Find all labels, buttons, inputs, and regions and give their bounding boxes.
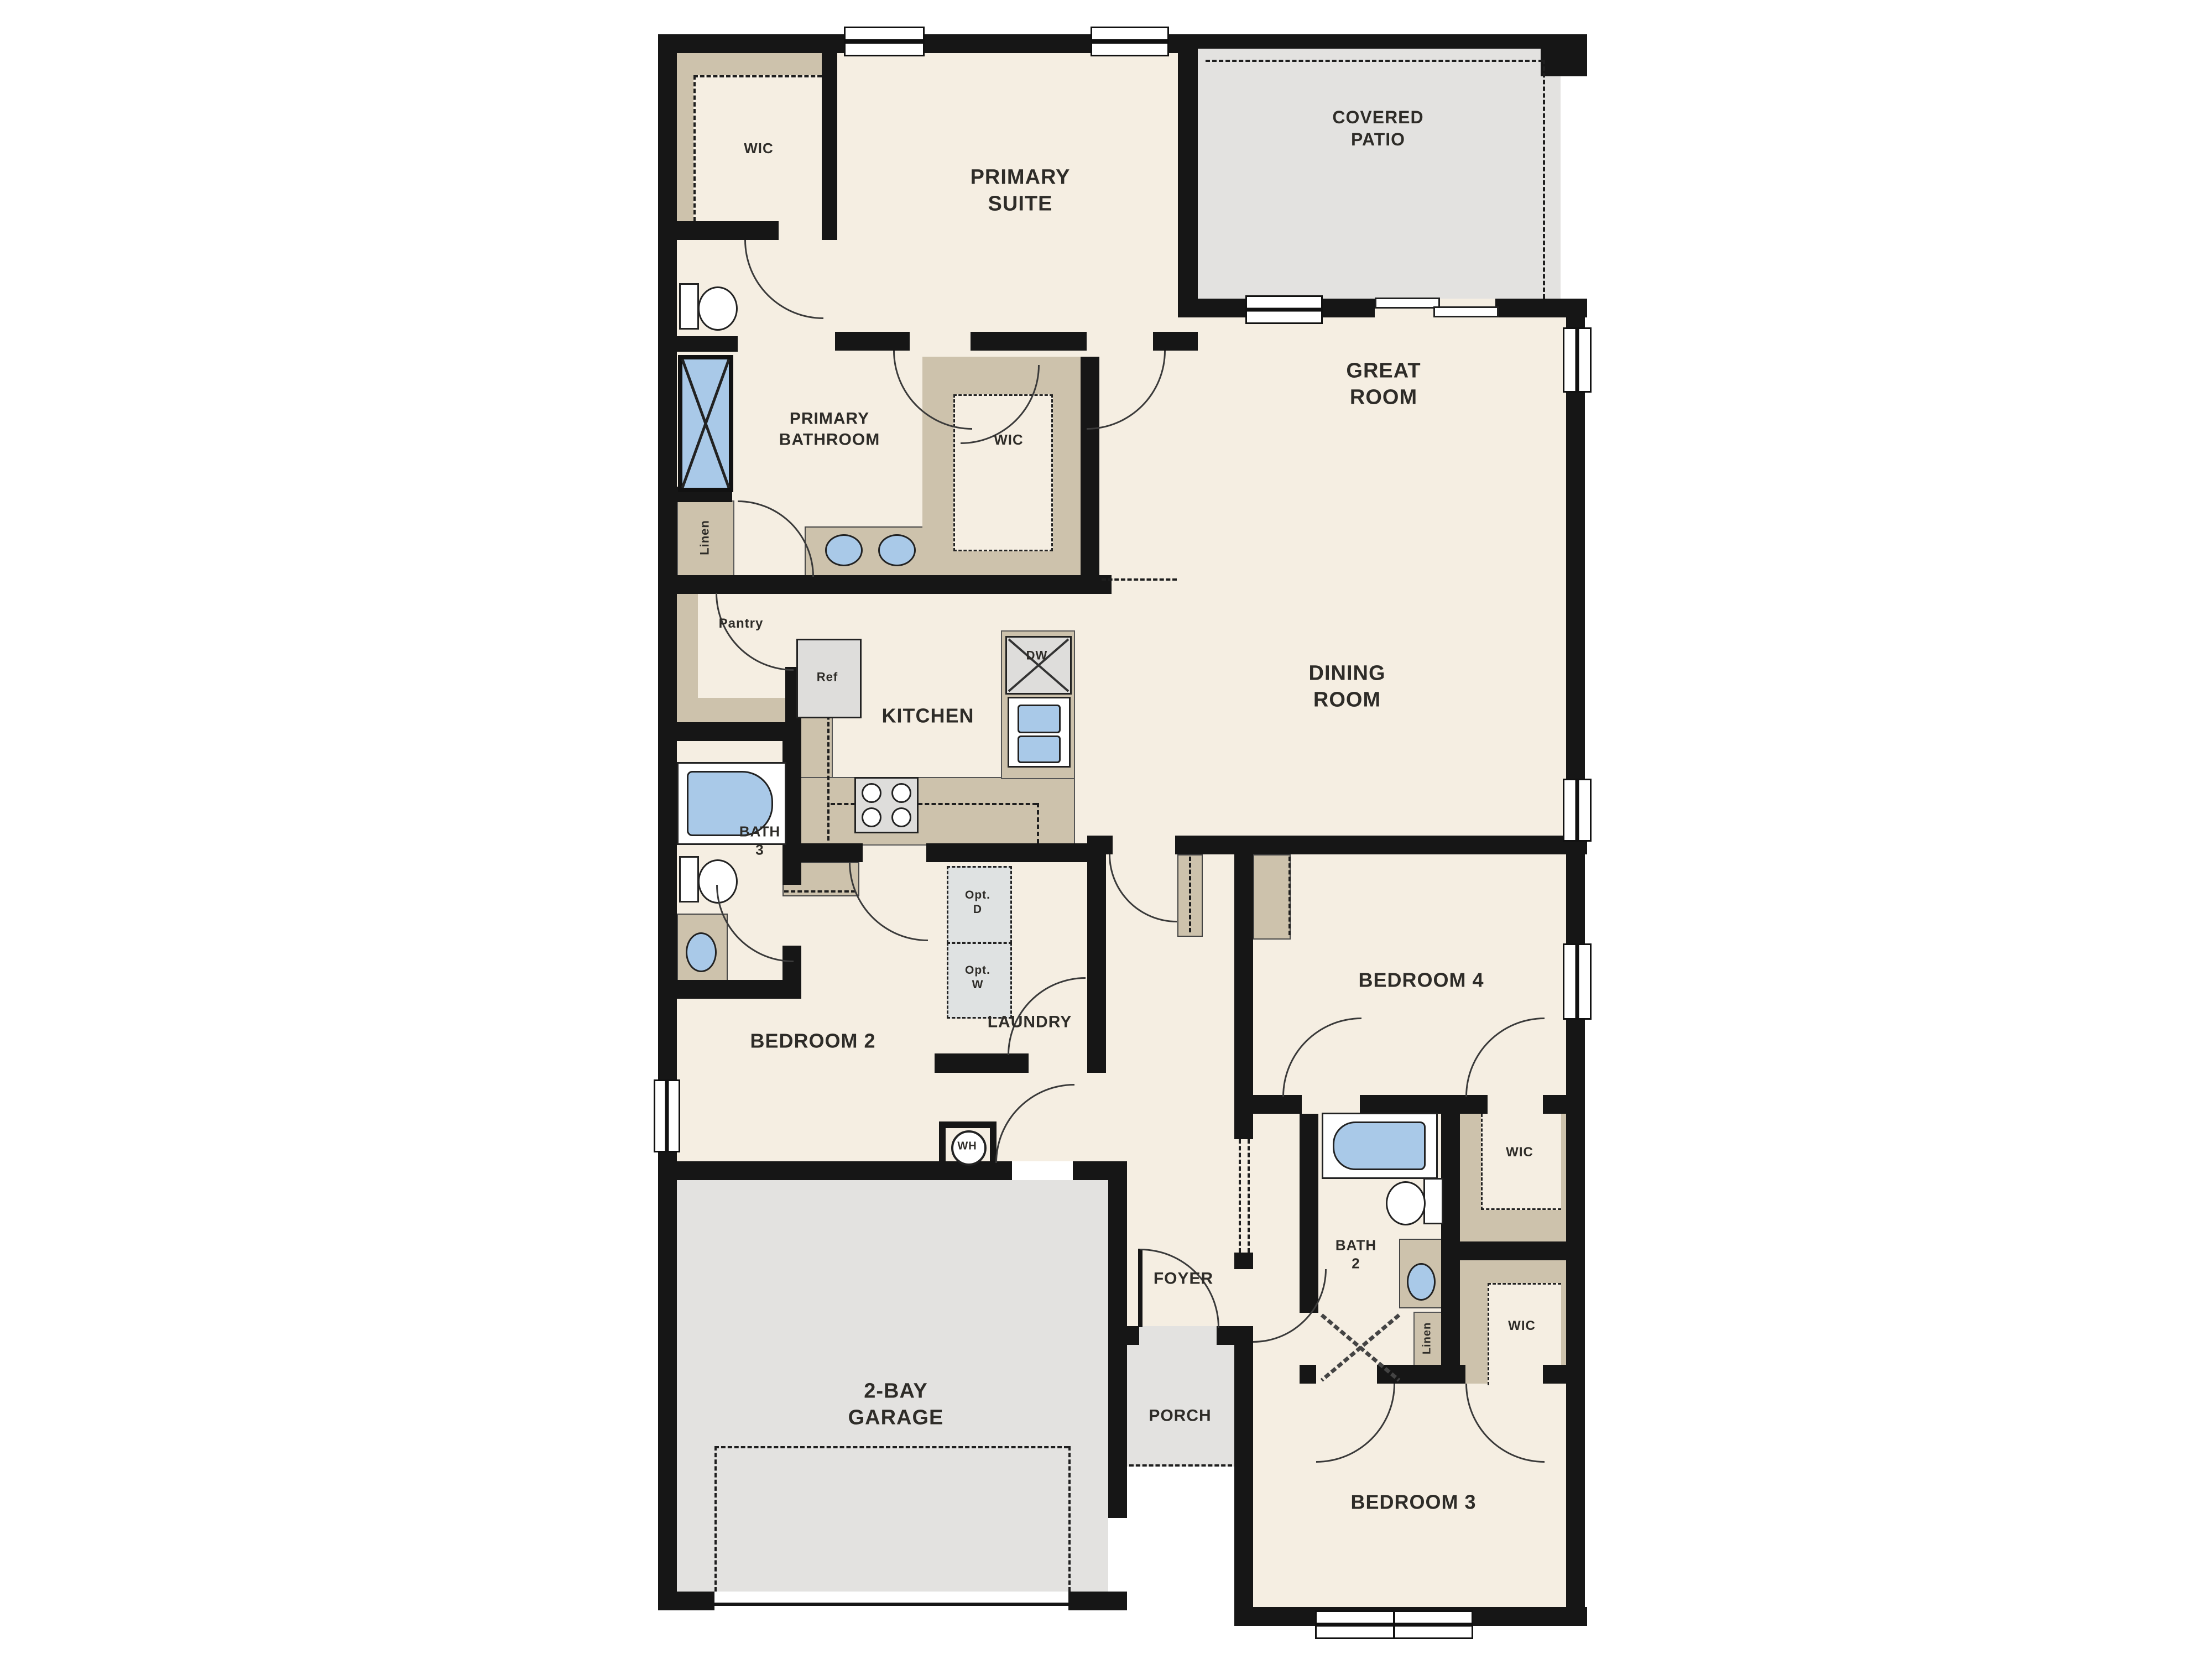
toilet-primary-tank — [679, 283, 699, 330]
toilet-bath2-tank — [1423, 1178, 1443, 1224]
room-label-covered-patio: COVERED PATIO — [1332, 106, 1423, 150]
room-label-foyer: FOYER — [1154, 1268, 1213, 1289]
appliance-label-opt-washer: Opt. W — [965, 963, 990, 993]
cooktop-burner-4 — [891, 807, 911, 827]
room-label-wic4: WIC — [1508, 1318, 1536, 1334]
primary-sink-2 — [878, 534, 916, 566]
dishwasher-x — [1005, 636, 1072, 695]
wic3-interior — [1481, 1114, 1561, 1210]
wall-bedroom4-bottom-b — [1360, 1095, 1488, 1114]
wall-wc-stub — [677, 336, 738, 352]
room-label-garage: 2-BAY GARAGE — [848, 1379, 944, 1431]
window-bedroom3-2 — [1394, 1610, 1473, 1639]
wall-wh-left — [939, 1126, 946, 1161]
window-great-room-patio — [1245, 295, 1323, 324]
bath2-pocket-door-x — [1318, 1310, 1401, 1384]
window-primary-suite-2 — [1091, 27, 1169, 56]
wall-bath2-block-bottom-c — [1543, 1365, 1566, 1384]
wall-wh-top — [939, 1121, 997, 1128]
wall-ps-bottom-a — [835, 332, 910, 351]
patio-post — [1541, 34, 1587, 76]
kitchen-opt-counter-dashed-v — [1037, 803, 1039, 843]
room-label-dining-room: DINING ROOM — [1309, 661, 1386, 713]
room-label-linen-primary: Linen — [697, 520, 712, 555]
room-label-bedroom3: BEDROOM 3 — [1350, 1490, 1476, 1515]
wall-front-b — [1217, 1326, 1234, 1345]
room-label-wic3: WIC — [1506, 1144, 1533, 1161]
wall-bedroom4-bottom-a — [1234, 1095, 1302, 1114]
garage-door-dashed-left — [714, 1446, 717, 1592]
wall-wic1-right — [822, 53, 837, 240]
appliance-label-ref: Ref — [817, 669, 838, 685]
wall-garage-right — [1108, 1161, 1127, 1518]
wall-garage-bottom-left — [658, 1592, 714, 1610]
appliance-label-opt-dryer: Opt. D — [965, 888, 990, 917]
room-label-primary-suite: PRIMARY SUITE — [971, 165, 1071, 217]
room-label-bedroom2: BEDROOM 2 — [750, 1029, 875, 1053]
foyer-opening-dashed-b — [1248, 1139, 1250, 1253]
wall-garage-top-b — [1073, 1161, 1108, 1180]
room-label-kitchen: KITCHEN — [882, 703, 974, 728]
wall-patio-top — [1194, 34, 1587, 49]
window-great-room-right — [1563, 327, 1592, 393]
wall-kitchen-bottom-b — [926, 843, 1106, 862]
covered-patio-slab — [1198, 49, 1561, 299]
garage-door-dashed-top — [714, 1446, 1068, 1448]
room-label-pantry: Pantry — [719, 615, 764, 632]
wic1-shelf-dashed — [693, 75, 822, 77]
wall-left — [658, 34, 677, 1610]
wall-foyer-right-upper — [1234, 836, 1253, 1139]
wall-ps-bottom-c — [1153, 332, 1198, 351]
room-label-bath2: BATH 2 — [1335, 1237, 1376, 1272]
garage-door-dashed-right — [1068, 1446, 1071, 1592]
wic1-shelving-left — [677, 75, 693, 221]
patio-roof-dashed-right — [1543, 60, 1545, 299]
sliding-door-panel-2 — [1433, 306, 1499, 317]
patio-roof-dashed-top — [1206, 60, 1543, 62]
wall-greatroom-top-a — [1194, 299, 1245, 317]
hall-greatroom-opening-dashed — [1102, 578, 1177, 581]
wall-ps-bottom-b — [971, 332, 1087, 351]
room-label-wic1: WIC — [744, 139, 774, 158]
wall-bath2-wic-divider — [1441, 1114, 1460, 1365]
foyer-opening-dashed-a — [1239, 1139, 1241, 1253]
wall-wic-divider — [1460, 1241, 1566, 1260]
primary-sink-1 — [825, 534, 863, 566]
wall-wic1-bottom — [677, 221, 779, 240]
appliance-label-dw: DW — [1026, 648, 1048, 663]
wall-ps-right — [1178, 34, 1198, 317]
room-label-primary-bathroom: PRIMARY BATHROOM — [779, 409, 880, 450]
room-label-bedroom4: BEDROOM 4 — [1358, 968, 1484, 993]
wall-greatroom-top-b — [1319, 299, 1375, 317]
bedroom2-closet-rod-dashed — [784, 890, 855, 893]
window-bedroom2 — [654, 1079, 680, 1152]
garage-door-line — [714, 1603, 1068, 1606]
room-label-bath3: BATH 3 — [739, 823, 780, 859]
appliance-label-wh: WH — [957, 1140, 977, 1154]
pantry-shelving-bottom — [677, 698, 785, 722]
toilet-bath2-bowl — [1386, 1181, 1426, 1225]
wall-dining-bottom-a — [1106, 836, 1113, 854]
wall-laundry-bottom — [935, 1053, 1029, 1073]
kitchen-counter-bottom — [796, 777, 1075, 846]
porch-edge-dashed — [1129, 1464, 1232, 1467]
wall-dining-bottom-b — [1175, 836, 1587, 854]
window-dining — [1563, 779, 1592, 842]
room-label-linen-hall: Linen — [1421, 1322, 1434, 1354]
porch-slab — [1127, 1326, 1234, 1467]
wall-laundry-right — [1087, 836, 1106, 1073]
room-label-great-room: GREAT ROOM — [1346, 358, 1421, 411]
toilet-primary-bowl — [698, 286, 738, 331]
window-bedroom3-1 — [1315, 1610, 1395, 1639]
wic1-shelving-top — [677, 53, 824, 75]
wall-foyer-right-mid — [1234, 1253, 1253, 1269]
bath3-sink — [686, 932, 717, 972]
bath2-tub — [1333, 1121, 1426, 1170]
bedroom4-closet — [1253, 854, 1291, 940]
wall-bedroom3-left — [1234, 1326, 1253, 1607]
toilet-bath3-tank — [679, 856, 699, 902]
kitchen-sink-basin-2 — [1018, 735, 1061, 763]
cooktop-burner-1 — [862, 783, 881, 803]
room-label-porch: PORCH — [1149, 1405, 1211, 1426]
bedroom4-closet-rod-dashed — [1288, 857, 1291, 935]
dining-closet-rod-dashed — [1189, 857, 1191, 932]
window-primary-suite-1 — [844, 27, 925, 56]
wall-bath2-block-bottom-a — [1300, 1365, 1316, 1384]
wic1-rod-dashed — [693, 75, 696, 221]
sliding-door-panel-1 — [1375, 298, 1440, 309]
wall-bedroom4-bottom-c — [1543, 1095, 1566, 1114]
cooktop-burner-2 — [891, 783, 911, 803]
room-label-laundry: LAUNDRY — [988, 1011, 1072, 1032]
bath2-sink — [1407, 1263, 1436, 1301]
room-label-wic2: WIC — [994, 431, 1024, 449]
kitchen-sink-basin-1 — [1018, 705, 1061, 733]
wall-garage-bottom-right — [1068, 1592, 1127, 1610]
shower-fixture — [678, 355, 733, 492]
cooktop-burner-3 — [862, 807, 881, 827]
wall-pantry-bottom — [677, 722, 801, 741]
wall-bath-bottom — [677, 575, 1112, 594]
wall-front-a — [1127, 1326, 1139, 1345]
wall-bath3-bottom — [677, 980, 801, 999]
window-bedroom4 — [1563, 943, 1592, 1020]
